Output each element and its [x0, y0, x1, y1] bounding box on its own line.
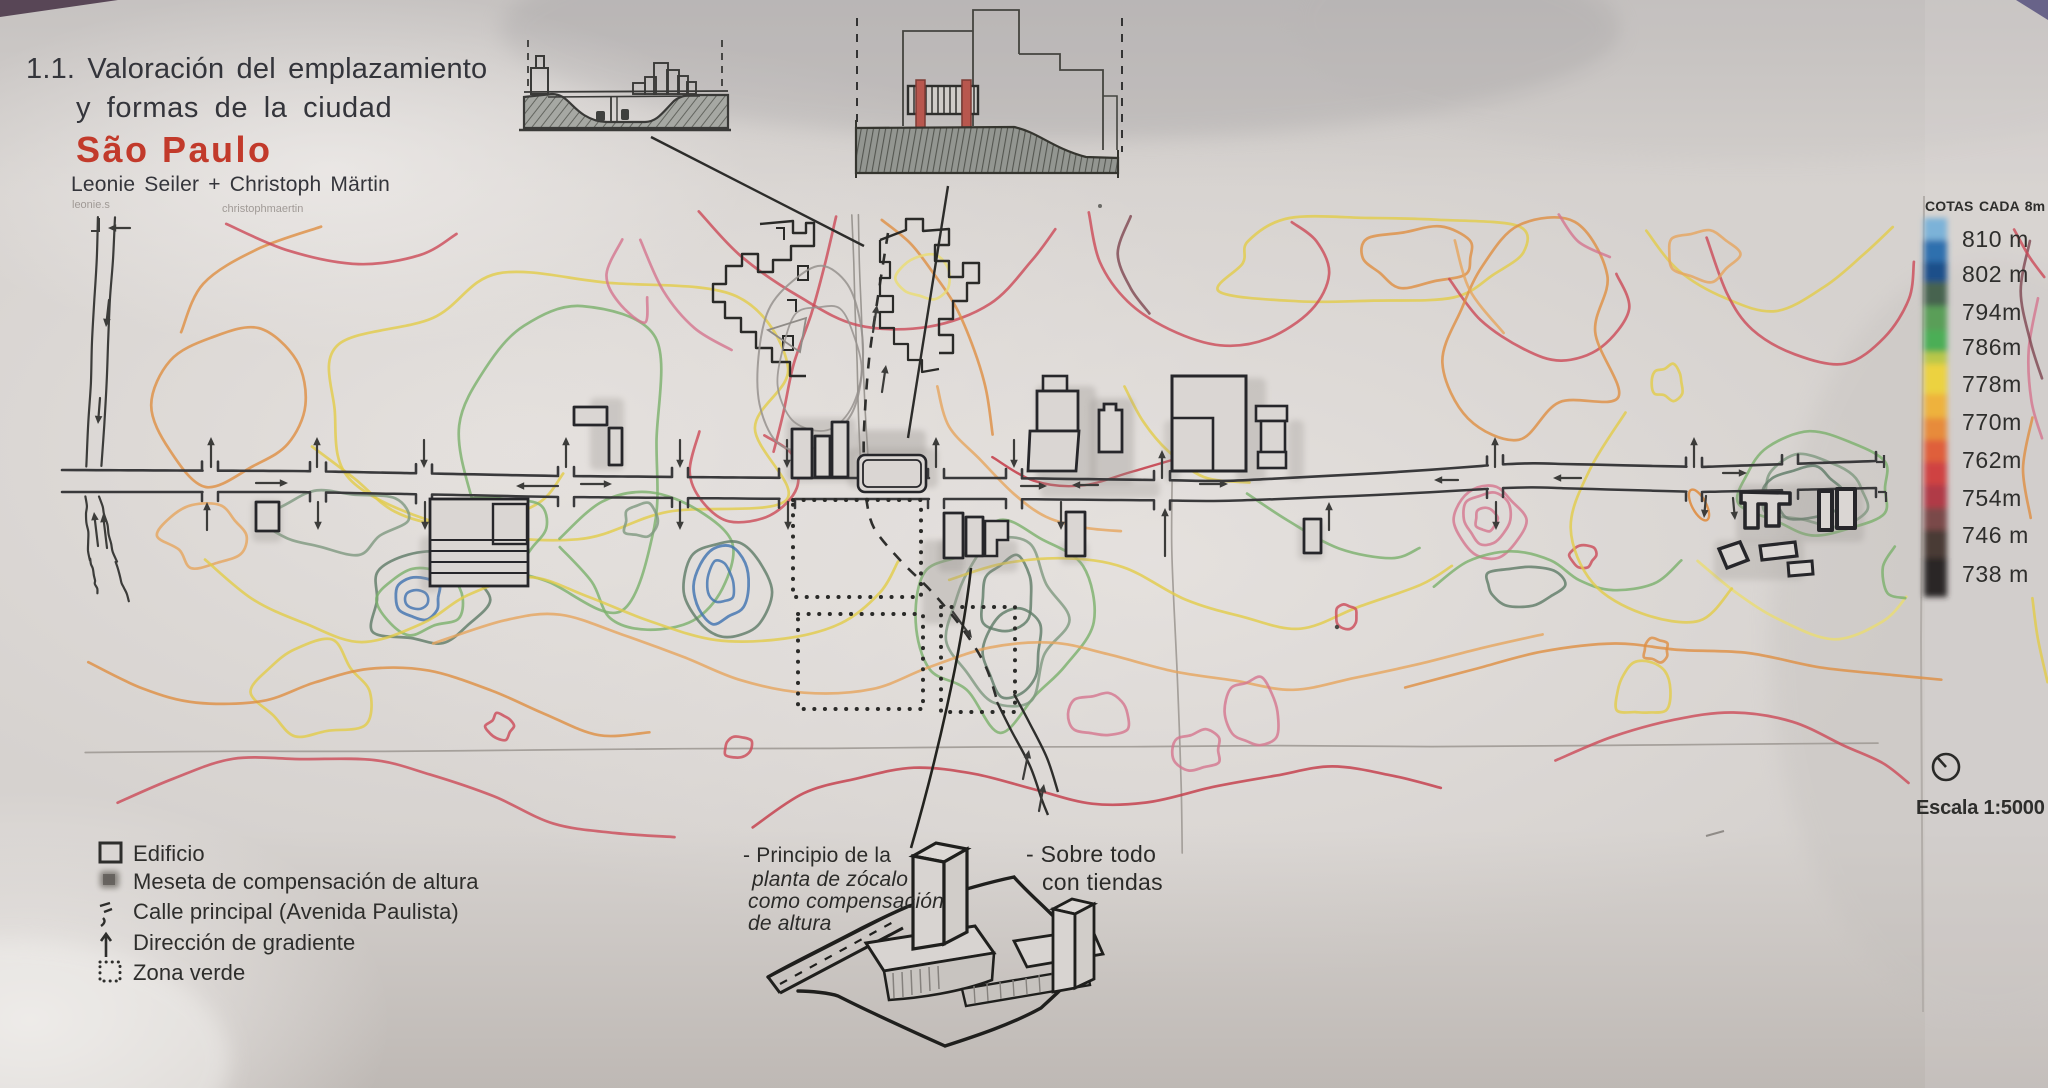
- svg-text:COTAS CADA 8m: COTAS CADA 8m: [1925, 198, 2045, 214]
- svg-text:- Principio de la: - Principio de la: [743, 844, 891, 867]
- svg-text:- Sobre todo: - Sobre todo: [1026, 841, 1156, 867]
- svg-text:746 m: 746 m: [1962, 522, 2029, 548]
- svg-text:Escala 1:5000: Escala 1:5000: [1916, 797, 2045, 819]
- svg-text:Edificio: Edificio: [133, 841, 205, 866]
- svg-text:802 m: 802 m: [1962, 261, 2029, 287]
- svg-text:810 m: 810 m: [1962, 226, 2029, 252]
- svg-text:Meseta de compensación de altu: Meseta de compensación de altura: [133, 869, 479, 894]
- svg-text:1.1. Valoración del emplazamie: 1.1. Valoración del emplazamiento: [26, 53, 487, 85]
- svg-text:754m: 754m: [1962, 485, 2022, 511]
- svg-text:738 m: 738 m: [1962, 561, 2029, 587]
- svg-text:como compensación: como compensación: [748, 890, 944, 913]
- svg-text:y formas de la ciudad: y formas de la ciudad: [76, 92, 392, 124]
- svg-text:leonie.s: leonie.s: [72, 199, 110, 211]
- svg-text:762m: 762m: [1962, 447, 2022, 473]
- svg-text:Dirección de gradiente: Dirección de gradiente: [133, 930, 355, 955]
- svg-text:São Paulo: São Paulo: [76, 129, 273, 170]
- svg-text:Leonie Seiler + Christoph Märt: Leonie Seiler + Christoph Märtin: [71, 173, 390, 196]
- svg-text:planta de zócalo: planta de zócalo: [751, 868, 908, 891]
- svg-text:Calle principal (Avenida Pauli: Calle principal (Avenida Paulista): [133, 899, 459, 924]
- svg-text:con tiendas: con tiendas: [1042, 869, 1163, 895]
- svg-text:794m: 794m: [1962, 299, 2022, 325]
- svg-text:christophmaertin: christophmaertin: [222, 203, 303, 215]
- svg-text:770m: 770m: [1962, 409, 2022, 435]
- svg-text:786m: 786m: [1962, 334, 2022, 360]
- svg-text:778m: 778m: [1962, 371, 2022, 397]
- svg-text:Zona verde: Zona verde: [133, 960, 245, 985]
- svg-text:de altura: de altura: [748, 912, 832, 935]
